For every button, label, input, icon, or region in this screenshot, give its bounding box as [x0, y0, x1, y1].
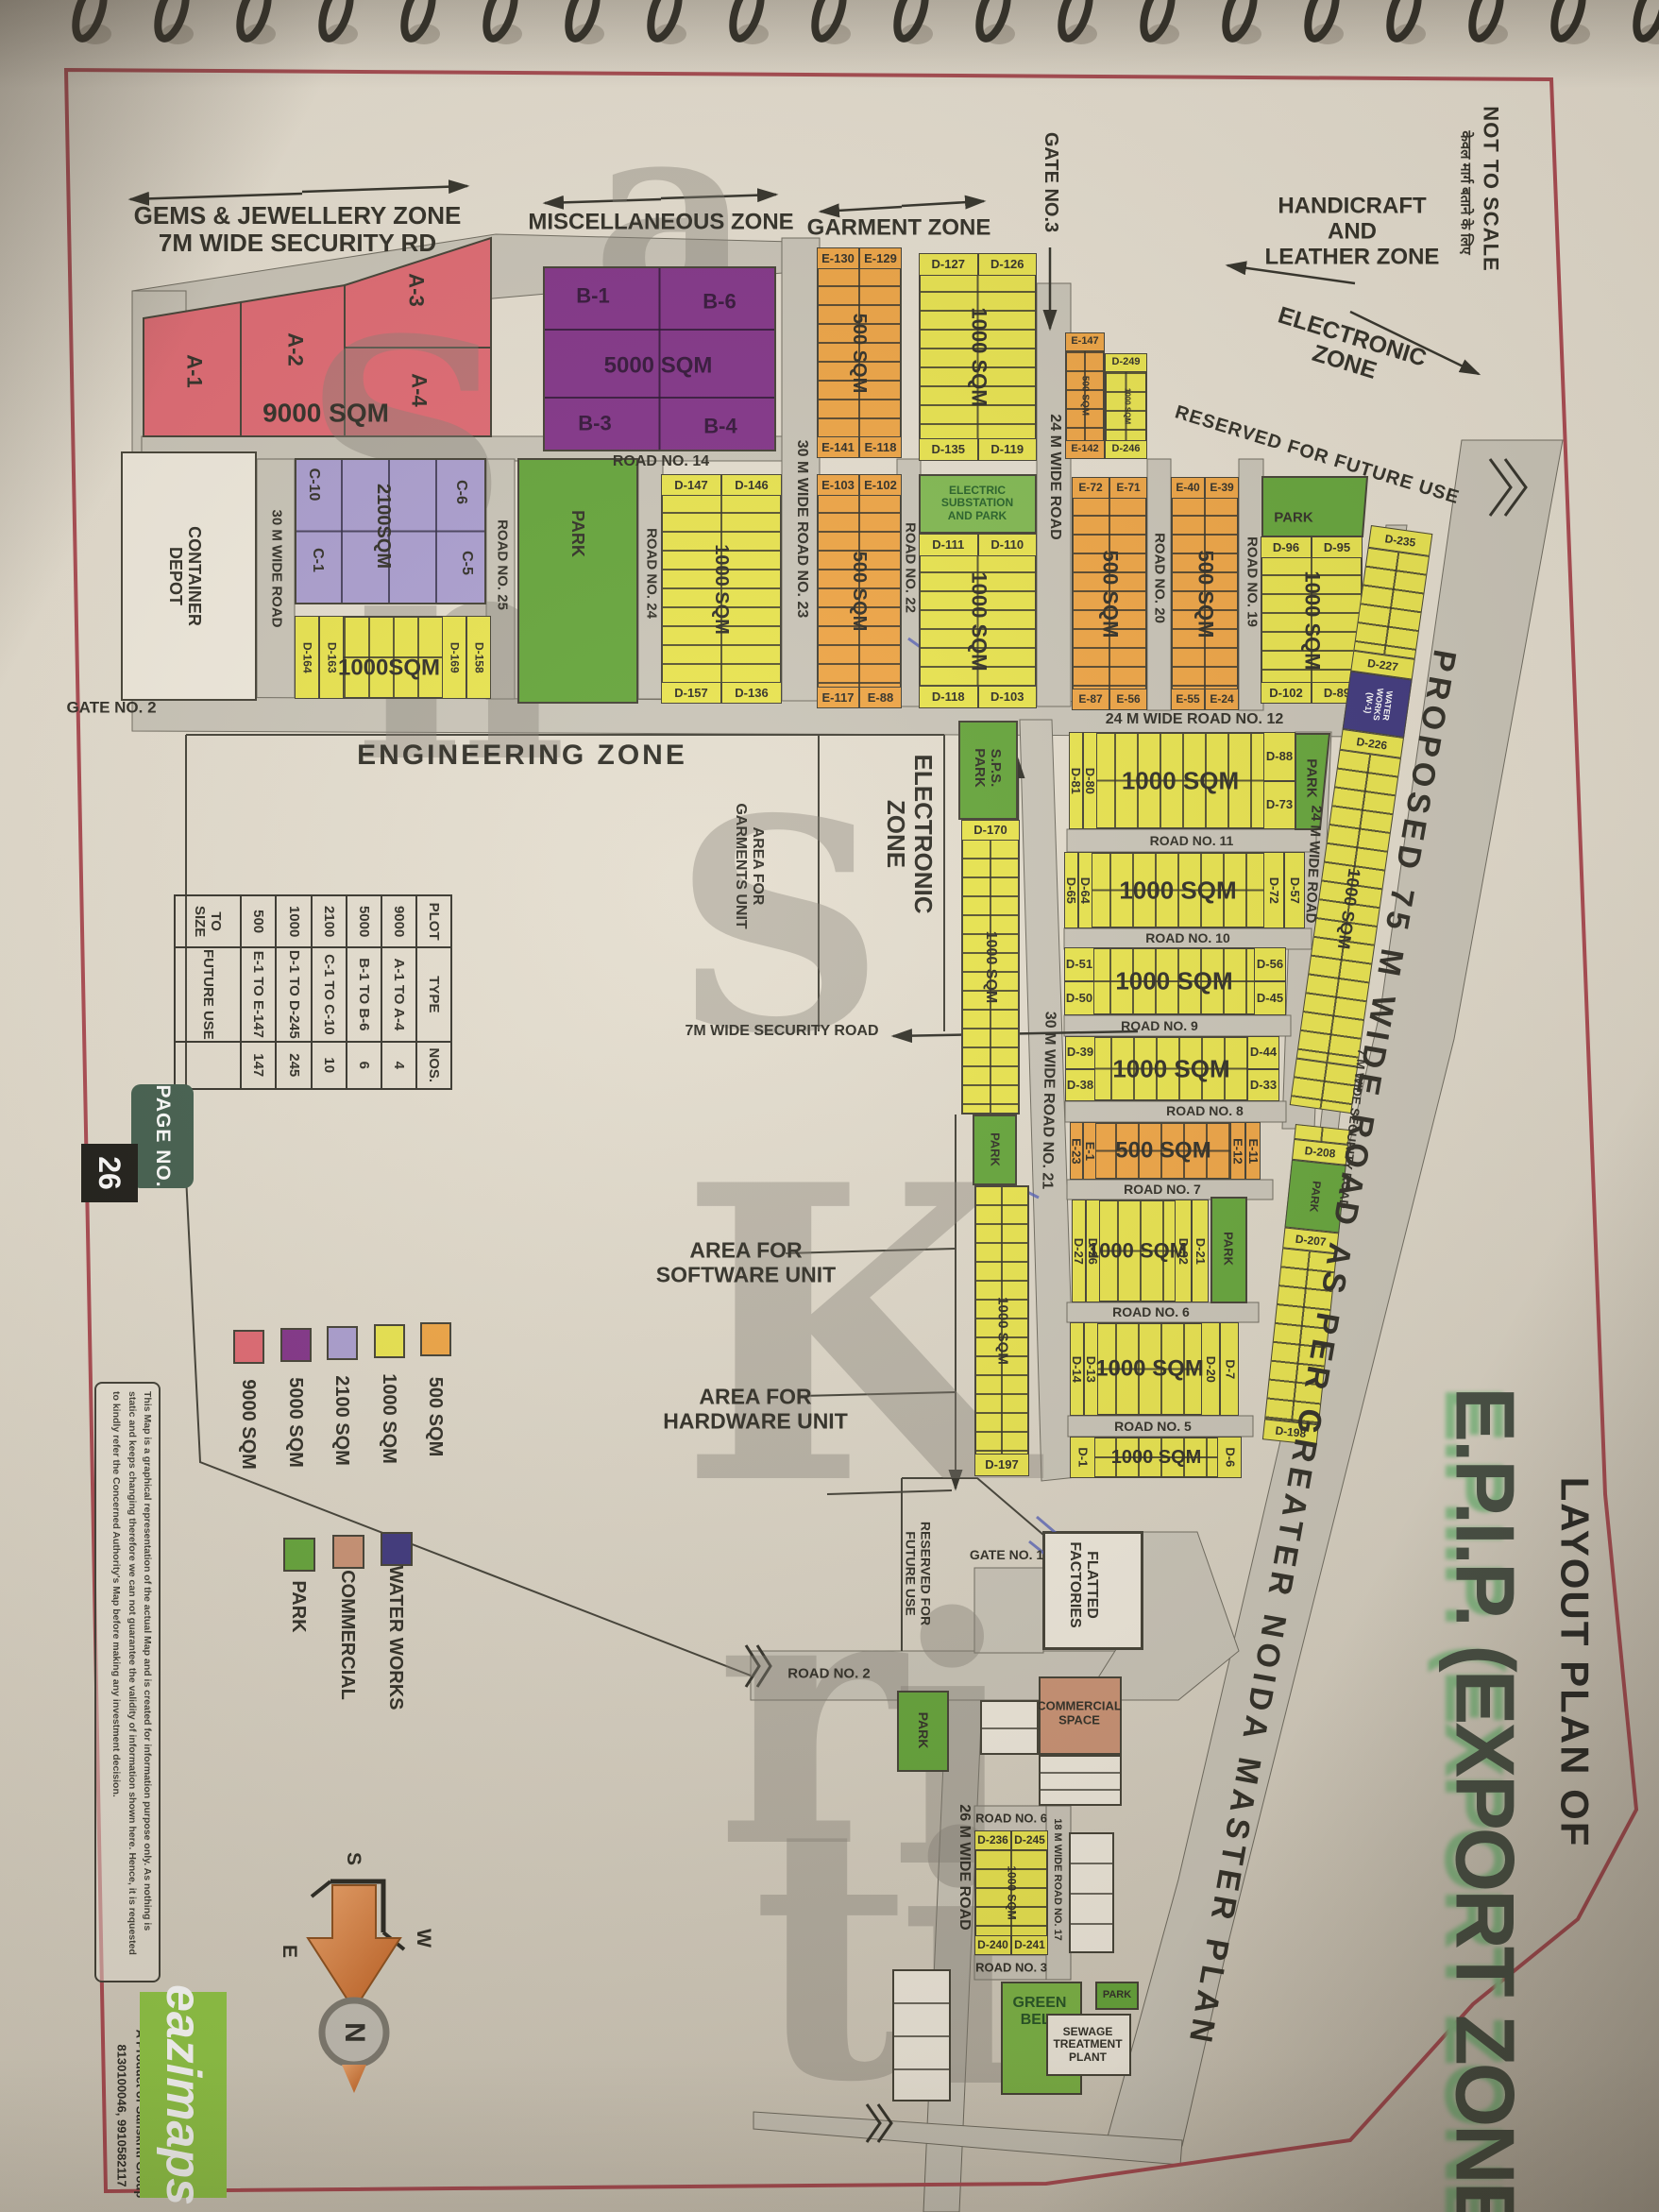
park-label: PARK: [1303, 758, 1319, 797]
hindi-note-label: केवल मार्ग बताने के लिए: [1457, 130, 1473, 254]
plot-id: E-24: [1210, 693, 1233, 706]
road-label: 26 M WIDE ROAD: [956, 1804, 973, 1930]
road-label: 24 M WIDE ROAD: [1046, 414, 1063, 539]
park-label: PARK: [1274, 511, 1312, 527]
map-label: B-4: [703, 416, 736, 439]
map-label: B-1: [576, 285, 609, 309]
plot-cell: E-103: [817, 474, 859, 496]
plot-cell: D-81: [1069, 732, 1083, 829]
plot-id: D-20: [1204, 1355, 1217, 1382]
park-label: PARK: [915, 1712, 930, 1749]
legend-swatch-9000-SQM: [233, 1330, 264, 1364]
plot-id: D-240: [977, 1939, 1008, 1951]
plot-id: E-142: [1071, 444, 1098, 455]
park-label: PARK: [1221, 1232, 1235, 1266]
plot-size-label: 500 SQM: [849, 313, 870, 392]
legend-swatch-2100-SQM: [327, 1326, 358, 1360]
plot-cell: [1353, 548, 1430, 659]
legend-swatch: [332, 1535, 364, 1569]
plot-size-label: 1000 SQM: [1300, 570, 1324, 670]
road-label: 30 M WIDE ROAD NO. 21: [1038, 1012, 1058, 1190]
table-row: 9000 A-1 TO A-4 4: [381, 895, 416, 1089]
plot-id: D-146: [735, 479, 768, 492]
map-label: C-6: [452, 480, 469, 504]
plot-id: D-246: [1112, 444, 1141, 455]
zone-garment-label: GARMENT ZONE: [807, 216, 991, 242]
road-label: ROAD NO. 19: [1244, 536, 1260, 627]
table-row: 5000 B-1 TO B-6 6: [347, 895, 381, 1089]
not-to-scale-label: NOT TO SCALE: [1479, 106, 1502, 271]
plot-cell: D-241: [1011, 1935, 1048, 1955]
table-row: 2100 C-1 TO C-10 10: [312, 895, 347, 1089]
map-photo: SanSKriti B-1B-65000 SQMB-3B-4A-1A-2A-3A…: [0, 0, 1659, 2212]
plot-id: E-56: [1116, 693, 1140, 706]
gate3-label: GATE NO.3: [1041, 132, 1061, 232]
plot-id: E-117: [822, 691, 855, 705]
table-row: TO SIZE FUTURE USE: [175, 895, 241, 1089]
gate2-label: GATE NO. 2: [66, 698, 156, 716]
plot-size-label: 500 SQM: [1098, 550, 1122, 638]
plot-cell: E-87: [1072, 689, 1109, 710]
plot-cell: E-147: [1065, 332, 1105, 351]
plot-size-label: 1000 SQM: [982, 931, 999, 1003]
plot-cell: D-157: [661, 682, 721, 704]
plot-cell: D-146: [721, 474, 782, 496]
plot-size-label: 500 SQM: [1115, 1138, 1210, 1164]
cell: D-1 TO D-245: [276, 947, 311, 1041]
plot-id: D-1: [1076, 1448, 1090, 1468]
plot-cell: D-56: [1254, 947, 1286, 981]
map-label: A-3: [404, 273, 428, 306]
eazimaps-logo: eazimaps: [140, 1992, 227, 2198]
plot-cell: D-249: [1105, 353, 1147, 372]
cell: FUTURE USE: [175, 947, 241, 1041]
plot-id: D-14: [1071, 1355, 1084, 1382]
plot-id: D-50: [1066, 992, 1092, 1005]
plot-id: D-65: [1065, 876, 1078, 903]
plot-id: E-141: [821, 441, 855, 454]
plot-size-label: 1000 SQM: [1112, 1055, 1229, 1082]
plot-cell: D-73: [1263, 781, 1295, 830]
plot-cell: E-55: [1171, 689, 1205, 710]
title-pre: LAYOUT PLAN OF: [1552, 1477, 1597, 1848]
plot-id: D-33: [1250, 1079, 1277, 1092]
legend-label: WATER WORKS: [385, 1565, 406, 1710]
legend-label: COMMERCIAL: [336, 1570, 357, 1700]
plot-cell: D-50: [1064, 981, 1094, 1015]
plot-summary-table-box: PLOT TYPE NOS. 9000 A-1 TO A-4 4 5000 B-…: [174, 894, 452, 1090]
road-label: ROAD NO. 22: [902, 522, 918, 613]
plot-id: D-158: [473, 642, 485, 673]
plot-cell: D-236: [974, 1830, 1011, 1850]
park-label: PARK: [1103, 1989, 1131, 2000]
plot-id: D-51: [1066, 958, 1092, 971]
zone-misc-label: MISCELLANEOUS ZONE: [528, 211, 793, 236]
plot-cell: E-1: [1083, 1122, 1096, 1180]
legend-swatch-1000-SQM: [374, 1324, 405, 1358]
plot-id: D-96: [1273, 541, 1299, 554]
cell: [175, 1042, 241, 1089]
plot-id: E-11: [1246, 1138, 1260, 1164]
plot-id: E-40: [1176, 482, 1199, 494]
plot-size-label: 1000 SQM: [994, 1297, 1010, 1365]
plot-size-label: 1000 SQM: [966, 571, 990, 671]
plot-id: D-44: [1250, 1046, 1277, 1059]
legend-label: 5000 SQM: [284, 1377, 305, 1468]
plot-id: D-157: [674, 687, 707, 700]
plot-cell: D-51: [1064, 947, 1094, 981]
plot-cell: E-102: [859, 474, 902, 496]
commercial-space-label: COMMERCIAL SPACE: [1037, 1699, 1122, 1727]
plot-id: E-88: [868, 691, 893, 705]
plot-id: E-1: [1083, 1141, 1096, 1160]
cell: 5000: [347, 895, 381, 947]
plot-id: D-147: [674, 479, 707, 492]
compass-n: N: [338, 2022, 370, 2043]
plot-cell: E-130: [817, 247, 859, 269]
cell: E-1 TO E-147: [241, 947, 276, 1041]
plot-id: D-163: [326, 642, 338, 673]
plot-cell: D-136: [721, 682, 782, 704]
plot-id: E-130: [821, 252, 855, 265]
plot-cell: D-27: [1072, 1200, 1086, 1302]
road-label: 18 M WIDE ROAD NO. 17: [1052, 1818, 1063, 1941]
plot-cell: D-197: [974, 1454, 1029, 1476]
plot-id: D-103: [990, 690, 1024, 704]
plot-cell: D-147: [661, 474, 721, 496]
plot-id: D-27: [1073, 1237, 1086, 1264]
plot-cell: D-246: [1105, 440, 1147, 459]
plot-cell: D-14: [1070, 1322, 1084, 1416]
map-label: B-3: [578, 413, 611, 436]
plot-cell: E-24: [1205, 689, 1239, 710]
plot-cell: D-1: [1070, 1437, 1095, 1478]
flatted-factories-label: FLATTED FACTORIES: [1066, 1541, 1100, 1627]
road-label: ROAD NO. 3: [975, 1962, 1047, 1976]
plot-id: D-245: [1014, 1834, 1045, 1846]
zone-engineering-label: ENGINEERING ZONE: [357, 740, 687, 772]
reserved-lower-label: RESERVED FOR FUTURE USE: [903, 1522, 932, 1625]
plot-cell: D-245: [1011, 1830, 1048, 1850]
area-hardware-label: AREA FOR HARDWARE UNIT: [663, 1385, 848, 1434]
plot-strip-d235: D-235D-227WATER WORKS (W-1)D-2261000 SQM: [1371, 525, 1432, 534]
plot-cell: D-72: [1263, 852, 1284, 928]
th-plot: PLOT: [416, 895, 451, 947]
cell: 4: [381, 1042, 416, 1089]
road-label: ROAD NO. 14: [613, 453, 709, 470]
page-no-label: PAGE NO.: [151, 1084, 174, 1187]
th-type: TYPE: [416, 947, 451, 1041]
road-label: ROAD NO. 20: [1151, 533, 1167, 623]
plot-size-label: 1000 SQM: [1111, 1447, 1202, 1468]
legend-swatch-5000-SQM: [280, 1328, 312, 1362]
plot-id: E-72: [1078, 482, 1102, 494]
plot-size-label: 1000 SQM: [1095, 1356, 1204, 1382]
plot-id: D-127: [932, 258, 965, 271]
map-label: B-6: [703, 291, 736, 315]
plot-id: E-129: [864, 252, 897, 265]
sewage-plant-label: SEWAGE TREATMENT PLANT: [1053, 2026, 1122, 2064]
plot-id: D-21: [1193, 1237, 1207, 1264]
plot-id: E-102: [864, 479, 897, 492]
legend-label: 1000 SQM: [378, 1373, 398, 1464]
plot-cell: D-88: [1263, 732, 1295, 781]
plot-cell: D-164: [295, 616, 319, 699]
plot-id: E-12: [1231, 1138, 1244, 1164]
plot-cell: E-12: [1230, 1122, 1245, 1180]
map-layer: B-1B-65000 SQMB-3B-4A-1A-2A-3A-49000 SQM…: [0, 0, 1659, 2212]
plot-cell: D-45: [1254, 981, 1286, 1015]
road-label: ROAD NO. 5: [1114, 1420, 1192, 1435]
plot-cell: D-102: [1261, 682, 1312, 704]
white-plot-cells: [980, 1700, 1039, 1755]
plot-id: D-169: [449, 642, 461, 673]
plot-id: D-95: [1324, 541, 1350, 554]
plot-summary-table: PLOT TYPE NOS. 9000 A-1 TO A-4 4 5000 B-…: [174, 894, 452, 1090]
zone-gems-label: GEMS & JEWELLERY ZONE 7M WIDE SECURITY R…: [134, 202, 462, 257]
plot-cell: D-103: [978, 686, 1038, 708]
disclaimer-box: This Map is a graphical representation o…: [94, 1382, 161, 1982]
plot-id: D-6: [1223, 1448, 1236, 1468]
water-works-label: WATER WORKS (W-1): [1362, 687, 1394, 723]
page-no-badge: PAGE NO.: [131, 1084, 194, 1188]
plot-id: D-39: [1067, 1046, 1093, 1059]
plot-cell: E-129: [859, 247, 902, 269]
plot-cell: D-170: [961, 820, 1020, 841]
plot-cell: E-117: [817, 687, 859, 708]
plot-id: E-118: [865, 441, 897, 454]
plot-id: D-226: [1356, 736, 1388, 752]
plot-cell: D-39: [1065, 1036, 1095, 1069]
plot-id: D-241: [1014, 1939, 1045, 1951]
plot-cell: D-110: [978, 534, 1038, 556]
cell: 1000: [276, 895, 311, 947]
plot-id: D-197: [985, 1458, 1018, 1472]
map-label: C-1: [309, 548, 326, 572]
plot-cell: D-21: [1192, 1200, 1209, 1302]
cell: C-1 TO C-10: [312, 947, 347, 1041]
disclaimer-line: This Map is a graphical representation o…: [140, 1391, 155, 1973]
road-label: 24 M WIDE ROAD NO. 12: [1106, 711, 1283, 728]
zone-electronic-label: ELECTRONIC ZONE: [1267, 301, 1430, 397]
white-plot-cells: [1069, 1832, 1114, 1953]
plot-size-label: 1000 SQM: [1334, 867, 1363, 950]
plot-id: D-110: [990, 538, 1024, 552]
plot-size-label: 1000 SQM: [966, 307, 990, 406]
map-label: C-10: [305, 468, 322, 502]
plot-id: E-87: [1078, 693, 1102, 706]
road-label: ROAD NO. 24: [643, 528, 659, 619]
table-row: 1000 D-1 TO D-245 245: [276, 895, 311, 1089]
compass-w: W: [412, 1929, 434, 1948]
plot-id: D-57: [1288, 876, 1301, 903]
plot-id: D-227: [1366, 657, 1398, 673]
map-label: 1000SQM: [338, 656, 440, 682]
plot-cell: D-135: [919, 438, 978, 461]
road-label: 30 M WIDE ROAD: [268, 509, 284, 627]
plot-id: E-23: [1070, 1138, 1083, 1164]
plot-size-label: 1000 SQM: [711, 544, 732, 635]
plot-cell: D-240: [974, 1935, 1011, 1955]
map-label: A-4: [407, 373, 431, 406]
disclaimer-line: to kindly refer the Concerned Authority'…: [109, 1391, 124, 1973]
park-label: PARK: [988, 1132, 1002, 1166]
plot-size-label: 500 SQM: [1079, 376, 1090, 416]
map-label: 5000 SQM: [604, 354, 713, 380]
security-road-label: 7M WIDE SECURITY ROAD: [685, 1023, 878, 1040]
plot-cell: WATER WORKS (W-1): [1343, 671, 1413, 738]
plot-cell: E-71: [1109, 477, 1147, 499]
plot-cell: D-44: [1247, 1036, 1279, 1069]
plot-id: E-71: [1116, 482, 1140, 494]
plot-id: D-80: [1084, 767, 1097, 793]
cell: 147: [241, 1042, 276, 1089]
road-label: ROAD NO. 9: [1121, 1019, 1198, 1034]
plot-cell: E-11: [1245, 1122, 1261, 1180]
plot-cell: D-119: [978, 438, 1038, 461]
plot-cell: D-80: [1083, 732, 1097, 829]
plot-size-label: 1000 SQM: [1122, 388, 1130, 424]
plot-id: D-249: [1112, 357, 1141, 368]
plot-size-label: 1000 SQM: [1005, 1865, 1017, 1919]
map-label: 2100SQM: [373, 484, 394, 569]
legend-swatch: [381, 1532, 413, 1566]
plot-id: D-88: [1266, 750, 1293, 763]
cell: TO SIZE: [175, 895, 241, 947]
plot-cell: E-56: [1109, 689, 1147, 710]
area-garments-label: AREA FOR GARMENTS UNIT: [732, 803, 766, 928]
plot-size-label: 1000 SQM: [1122, 767, 1239, 794]
plot-size-label: 500 SQM: [1193, 550, 1217, 638]
cell: B-1 TO B-6: [347, 947, 381, 1041]
plot-cell: D-111: [919, 534, 978, 556]
plot-cell: D-7: [1220, 1322, 1239, 1416]
cell: 9000: [381, 895, 416, 947]
plot-id: D-102: [1269, 687, 1302, 700]
park-label: PARK: [568, 510, 587, 557]
electric-substation-label: ELECTRIC SUBSTATION AND PARK: [941, 485, 1013, 522]
plot-cell: D-6: [1217, 1437, 1242, 1478]
plot-size-label: 500 SQM: [849, 552, 870, 631]
road-label: ROAD NO. 2: [787, 1667, 871, 1683]
gate1-label: GATE NO. 1: [970, 1548, 1043, 1563]
legend-label: 9000 SQM: [238, 1379, 259, 1470]
plot-size-label: 1000 SQM: [1088, 1239, 1187, 1263]
plot-id: D-126: [990, 258, 1024, 271]
legend-label: PARK: [288, 1580, 309, 1632]
plot-cell: E-39: [1205, 477, 1239, 499]
brand-name: eazimaps: [155, 1984, 212, 2205]
th-nos: NOS.: [416, 1042, 451, 1089]
park-label: PARK: [1308, 1180, 1323, 1212]
plot-id: D-236: [977, 1834, 1008, 1846]
plot-id: E-55: [1176, 693, 1199, 706]
plot-cell: E-88: [859, 687, 902, 708]
sps-park-label: S.P.S. PARK: [971, 748, 1003, 787]
cell: 245: [276, 1042, 311, 1089]
plot-cell: D-65: [1064, 852, 1078, 928]
road-label: ROAD NO. 8: [1166, 1104, 1244, 1119]
plot-cell: E-23: [1070, 1122, 1083, 1180]
zone-handicraft-label: HANDICRAFT AND LEATHER ZONE: [1265, 195, 1440, 271]
plot-id: D-111: [932, 538, 964, 552]
plot-id: D-38: [1067, 1079, 1093, 1092]
plot-id: D-119: [990, 443, 1024, 456]
white-plot-cells: [1039, 1755, 1122, 1806]
map-label: 9000 SQM: [262, 398, 389, 427]
legend-label: 500 SQM: [425, 1377, 446, 1456]
plot-id: E-147: [1071, 336, 1098, 348]
plot-cell: E-142: [1065, 440, 1105, 459]
plot-cell: D-38: [1065, 1069, 1095, 1102]
plot-id: E-103: [821, 479, 855, 492]
plot-cell: E-118: [859, 436, 902, 458]
map-label: A-2: [283, 332, 307, 366]
compass-e: E: [278, 1945, 300, 1958]
plot-id: D-45: [1257, 992, 1283, 1005]
zone-electronic-mid-label: ELECTRONIC ZONE: [882, 755, 937, 914]
title-main: E.P.I.P. (EXPORT ZONE): [1438, 1387, 1532, 2212]
plot-size-label: 1000 SQM: [1119, 876, 1236, 904]
cell: A-1 TO A-4: [381, 947, 416, 1041]
plot-cell: D-95: [1312, 536, 1363, 558]
plot-cell: D-64: [1078, 852, 1092, 928]
disclaimer-line: static and keeps changing therefore we c…: [124, 1391, 139, 1973]
page-no: 26: [93, 1156, 127, 1190]
plot-cell: D-158: [466, 616, 491, 699]
plot-size-label: 1000 SQM: [1115, 967, 1232, 995]
cell: 500: [241, 895, 276, 947]
road-label: ROAD NO. 6: [1112, 1305, 1190, 1320]
legend-swatch-500-SQM: [420, 1322, 451, 1356]
cell: 10: [312, 1042, 347, 1089]
plot-cell: E-40: [1171, 477, 1205, 499]
plot-id: E-39: [1210, 482, 1233, 494]
plot-id: D-136: [735, 687, 768, 700]
page-no-box: 26: [81, 1144, 138, 1202]
legend-label: 2100 SQM: [331, 1375, 352, 1466]
plot-cell: E-141: [817, 436, 859, 458]
plot-cell: D-169: [442, 616, 466, 699]
road-label: ROAD NO. 6: [975, 1812, 1047, 1827]
plot-cell: D-126: [978, 253, 1038, 276]
plot-cell: D-33: [1247, 1069, 1279, 1102]
plot-id: D-118: [932, 690, 965, 704]
plot-cell: D-20: [1201, 1322, 1220, 1416]
plot-id: D-170: [973, 824, 1007, 837]
map-label: A-1: [182, 354, 206, 387]
plot-id: D-56: [1257, 958, 1283, 971]
plot-id: D-208: [1304, 1145, 1336, 1160]
product-phone: 8130100046, 9910582117: [114, 2044, 128, 2186]
road-label: ROAD NO. 10: [1145, 931, 1229, 946]
road-label: ROAD NO. 7: [1124, 1183, 1201, 1198]
legend-swatch: [283, 1538, 315, 1572]
plot-id: D-164: [301, 642, 313, 673]
cell: 6: [347, 1042, 381, 1089]
plot-id: D-235: [1384, 533, 1416, 549]
plot-cell: D-127: [919, 253, 978, 276]
cell: 2100: [312, 895, 347, 947]
white-plot-cells: [892, 1969, 951, 2101]
table-row: 500 E-1 TO E-147 147: [241, 895, 276, 1089]
plot-id: D-81: [1070, 767, 1083, 793]
plot-id: D-64: [1079, 876, 1092, 903]
plot-id: D-7: [1223, 1359, 1236, 1379]
container-depot-label: CONTAINER DEPOT: [166, 526, 204, 626]
plot-cell: E-72: [1072, 477, 1109, 499]
area-software-label: AREA FOR SOFTWARE UNIT: [656, 1238, 836, 1287]
